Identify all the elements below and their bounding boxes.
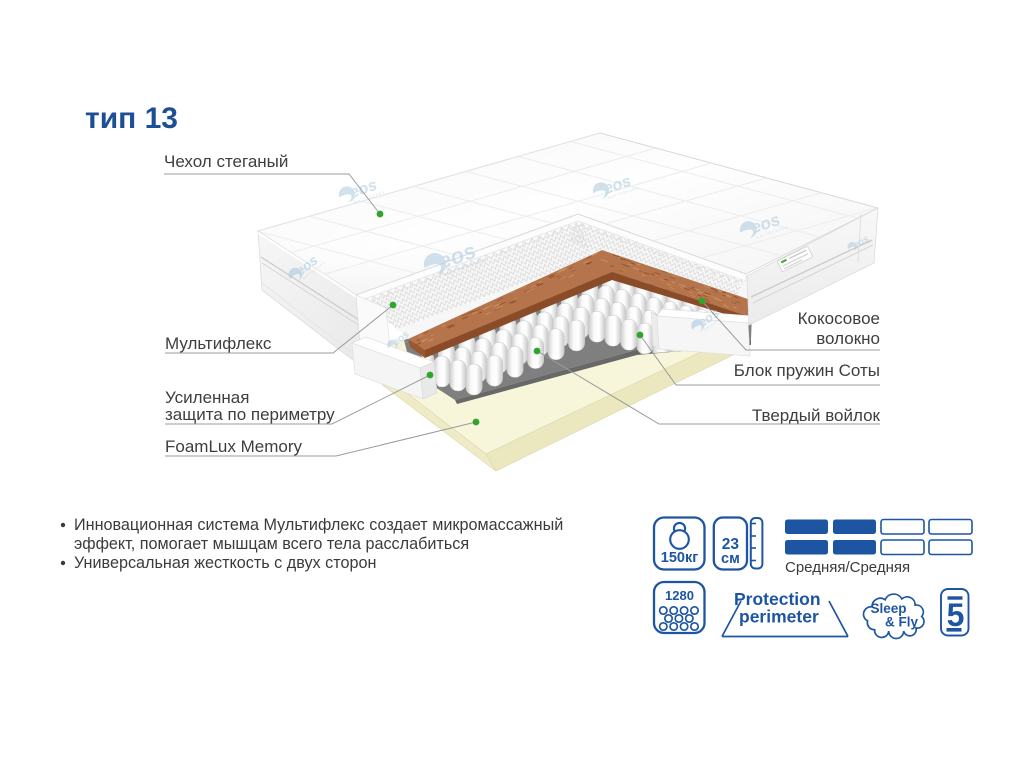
svg-text:Чехол стеганый: Чехол стеганый bbox=[164, 152, 288, 171]
svg-text:волокно: волокно bbox=[816, 329, 880, 348]
svg-text:Инновационная система Мультифл: Инновационная система Мультифлекс создае… bbox=[74, 516, 563, 534]
svg-text:1280: 1280 bbox=[665, 588, 694, 603]
svg-text:тип 13: тип 13 bbox=[85, 102, 178, 135]
svg-text:Универсальная жесткость с двух: Универсальная жесткость с двух сторон bbox=[74, 554, 376, 572]
svg-text:Средняя/Средняя: Средняя/Средняя bbox=[785, 559, 910, 576]
svg-text:Мультифлекс: Мультифлекс bbox=[165, 334, 272, 353]
svg-text:FoamLux Memory: FoamLux Memory bbox=[165, 437, 302, 456]
svg-text:& Fly: & Fly bbox=[885, 615, 918, 630]
svg-text:Кокосовое: Кокосовое bbox=[798, 309, 880, 328]
svg-text:см: см bbox=[721, 551, 740, 567]
svg-text:Блок пружин Соты: Блок пружин Соты bbox=[734, 361, 880, 380]
svg-text:защита по периметру: защита по периметру bbox=[165, 405, 335, 424]
svg-text:perimeter: perimeter bbox=[739, 607, 819, 627]
svg-text:5: 5 bbox=[947, 597, 965, 633]
svg-text:эффект, помогает мышцам всего: эффект, помогает мышцам всего тела рассл… bbox=[74, 535, 469, 553]
svg-text:Твердый войлок: Твердый войлок bbox=[752, 406, 881, 425]
svg-text:150кг: 150кг bbox=[661, 550, 699, 566]
